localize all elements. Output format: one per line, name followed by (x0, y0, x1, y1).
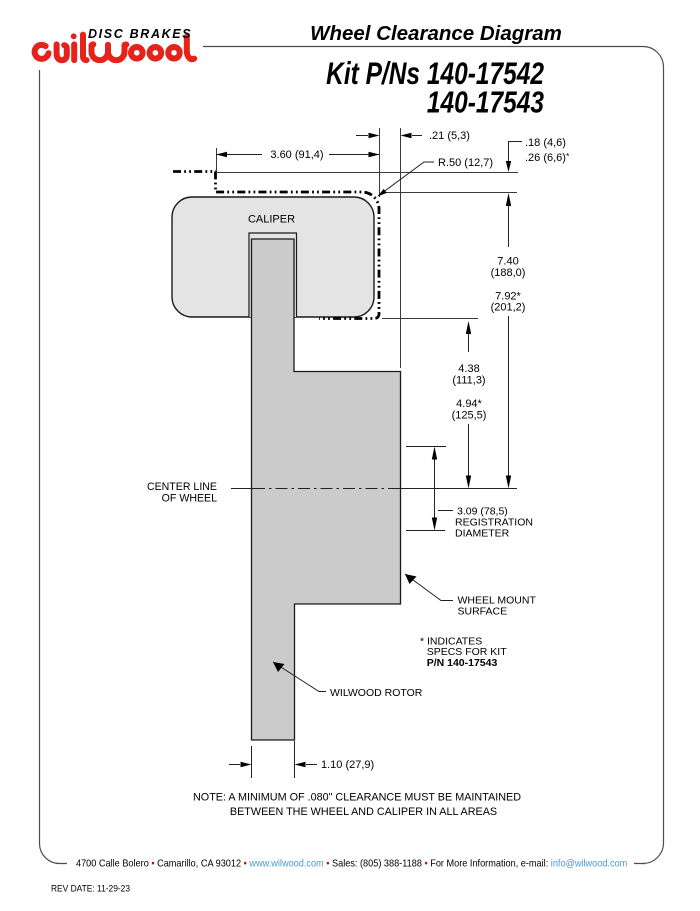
svg-text:P/N 140-17543: P/N 140-17543 (427, 657, 498, 669)
svg-text:(188,0): (188,0) (491, 267, 526, 279)
svg-text:.26 (6,6)*: .26 (6,6)* (525, 151, 570, 164)
svg-text:NOTE: A MINIMUM OF .080" CLEAR: NOTE: A MINIMUM OF .080" CLEARANCE MUST … (193, 792, 521, 804)
svg-text:WILWOOD ROTOR: WILWOOD ROTOR (330, 687, 423, 699)
svg-text:7.40: 7.40 (497, 256, 518, 268)
svg-text:CALIPER: CALIPER (248, 214, 295, 226)
svg-text:OF WHEEL: OF WHEEL (162, 493, 217, 505)
svg-text:.21 (5,3): .21 (5,3) (429, 130, 470, 142)
svg-text:.18 (4,6): .18 (4,6) (525, 137, 566, 149)
svg-text:140-17543: 140-17543 (427, 85, 545, 119)
svg-text:4.38: 4.38 (458, 363, 479, 375)
svg-text:BETWEEN THE WHEEL AND CALIPER: BETWEEN THE WHEEL AND CALIPER IN ALL ARE… (230, 806, 497, 818)
svg-text:1.10 (27,9): 1.10 (27,9) (321, 759, 374, 771)
svg-text:R.50 (12,7): R.50 (12,7) (438, 157, 493, 169)
svg-text:4.94*: 4.94* (456, 398, 482, 410)
svg-text:DIAMETER: DIAMETER (455, 528, 510, 540)
svg-text:(201,2): (201,2) (491, 302, 526, 314)
svg-text:Wheel Clearance Diagram: Wheel Clearance Diagram (310, 22, 562, 45)
svg-text:REV DATE: 11-29-23: REV DATE: 11-29-23 (51, 884, 130, 895)
svg-text:CENTER LINE: CENTER LINE (147, 481, 217, 493)
svg-text:4700 Calle Bolero • Camarillo,: 4700 Calle Bolero • Camarillo, CA 93012 … (76, 858, 627, 870)
svg-text:SURFACE: SURFACE (458, 606, 508, 618)
svg-text:3.60 (91,4): 3.60 (91,4) (270, 149, 323, 161)
svg-text:(125,5): (125,5) (452, 410, 487, 422)
svg-text:DISC BRAKES: DISC BRAKES (88, 27, 192, 41)
svg-text:(111,3): (111,3) (452, 375, 485, 387)
